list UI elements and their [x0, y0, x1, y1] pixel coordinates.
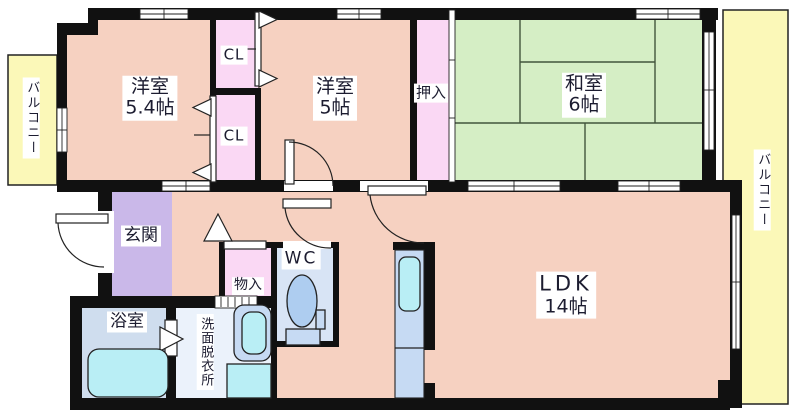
label-washitsu: 和室 6帖 [562, 73, 606, 118]
label-genkan: 玄関 [121, 225, 161, 246]
floorplan-canvas: バルコニー 洋室 5.4帖 CL CL 洋室 5帖 押入 和室 6帖 バルコニー… [0, 0, 800, 412]
label-bedroom2-size: 5帖 [316, 98, 354, 119]
kitchen-sink [399, 257, 420, 311]
washbasin-bowl [242, 312, 266, 354]
label-closet-top: CL [221, 46, 248, 65]
window-top-bedroom1 [140, 9, 188, 19]
storage-door [224, 241, 266, 249]
floorplan-drawing [0, 0, 800, 412]
label-oshiire: 押入 [414, 84, 448, 103]
window-top-bedroom2 [337, 9, 381, 19]
label-bath: 浴室 [107, 311, 147, 332]
label-bedroom1-name: 洋室 [125, 77, 174, 98]
toilet-flush-unit [316, 310, 325, 329]
label-wc: WC [282, 248, 321, 269]
label-washitsu-name: 和室 [565, 74, 603, 95]
fusuma-oshiire-washitsu [449, 10, 455, 182]
label-ldk-name: LDK [539, 273, 593, 297]
exterior-notch-topleft [50, 0, 88, 25]
sliding-door-bedroom1 [162, 181, 210, 191]
label-bedroom2: 洋室 5帖 [313, 76, 357, 121]
label-bedroom1-size: 5.4帖 [125, 98, 174, 119]
window-top-washitsu [636, 9, 700, 19]
label-bedroom1: 洋室 5.4帖 [122, 76, 177, 121]
label-ldk: LDK 14帖 [536, 272, 596, 319]
exterior-entry-porch [50, 192, 98, 296]
label-washroom: 洗面脱衣所 [197, 314, 214, 390]
toilet [287, 275, 317, 327]
label-balcony-right: バルコニー [754, 150, 771, 231]
label-storage: 物入 [232, 277, 264, 295]
label-closet-bottom: CL [221, 127, 248, 146]
label-bedroom2-name: 洋室 [316, 77, 354, 98]
toilet-tank [286, 329, 320, 345]
genkan-floor [112, 192, 172, 302]
washing-machine [227, 364, 271, 398]
label-balcony-left: バルコニー [23, 78, 40, 159]
sliding-door-washitsu-ldk-1 [468, 181, 560, 191]
label-ldk-size: 14帖 [539, 296, 593, 317]
floor-fills [50, 0, 730, 400]
window-washitsu-balcony [704, 32, 714, 150]
window-ldk-balcony [732, 215, 740, 349]
bathtub [88, 349, 168, 397]
label-washitsu-size: 6帖 [565, 95, 603, 116]
window-bedroom1-balcony [57, 108, 67, 152]
sliding-door-washitsu-ldk-2 [618, 181, 680, 191]
